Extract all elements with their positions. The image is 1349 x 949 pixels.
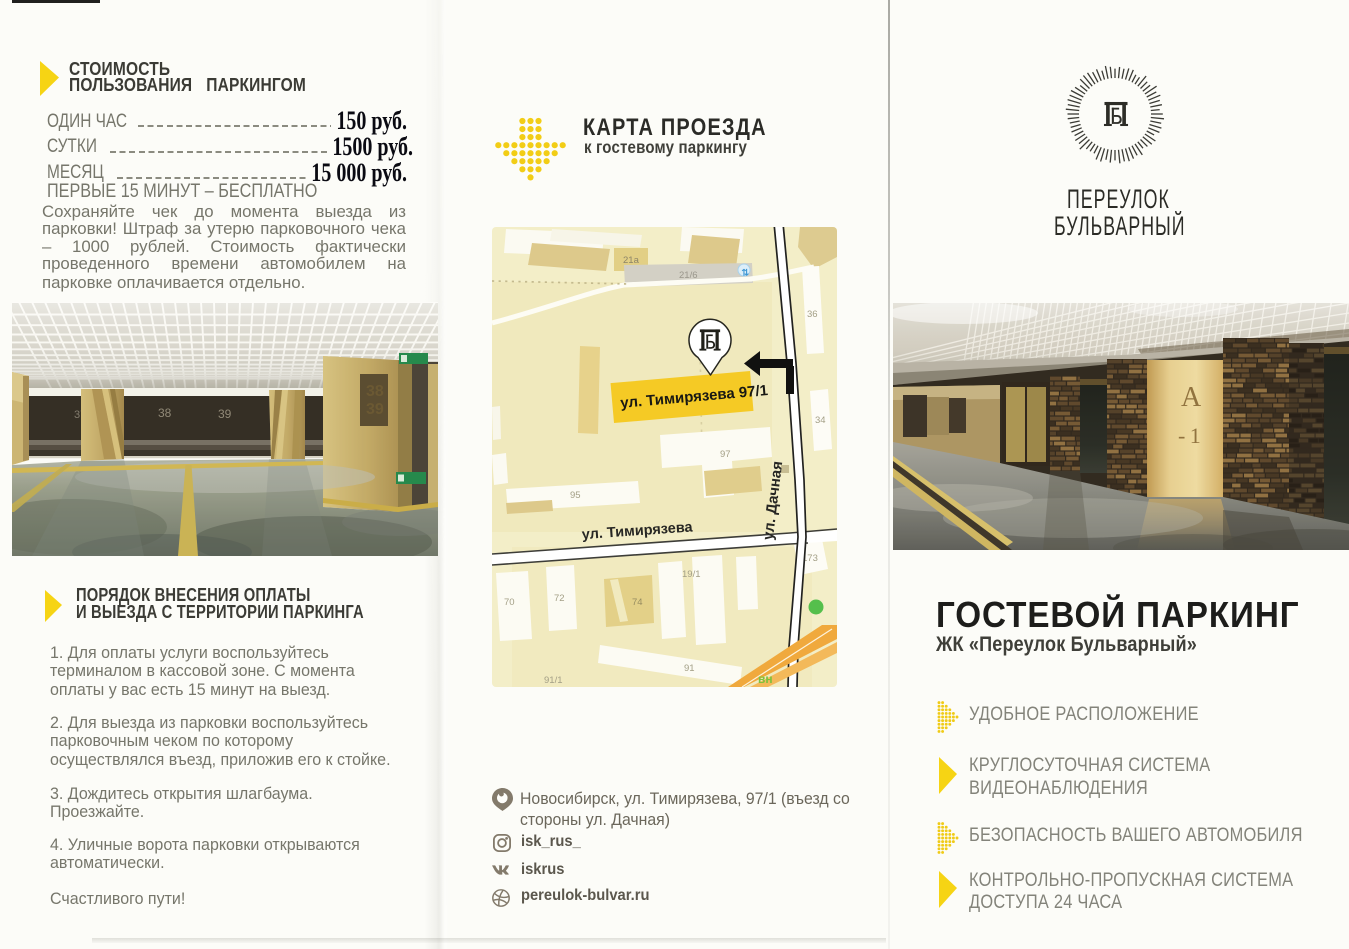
svg-text:36: 36: [807, 309, 818, 320]
svg-text:21a: 21a: [623, 255, 640, 266]
svg-text:91: 91: [684, 663, 695, 674]
svg-text:97: 97: [720, 449, 731, 460]
svg-text:72: 72: [554, 593, 565, 604]
svg-text:70: 70: [504, 597, 515, 608]
svg-text:95: 95: [570, 490, 581, 501]
svg-text:74: 74: [632, 597, 643, 608]
svg-text:вн: вн: [758, 672, 773, 686]
svg-text:19/1: 19/1: [682, 569, 701, 580]
svg-text:⇅: ⇅: [742, 268, 750, 278]
svg-text:34: 34: [815, 415, 826, 426]
svg-text:91/1: 91/1: [544, 675, 563, 686]
